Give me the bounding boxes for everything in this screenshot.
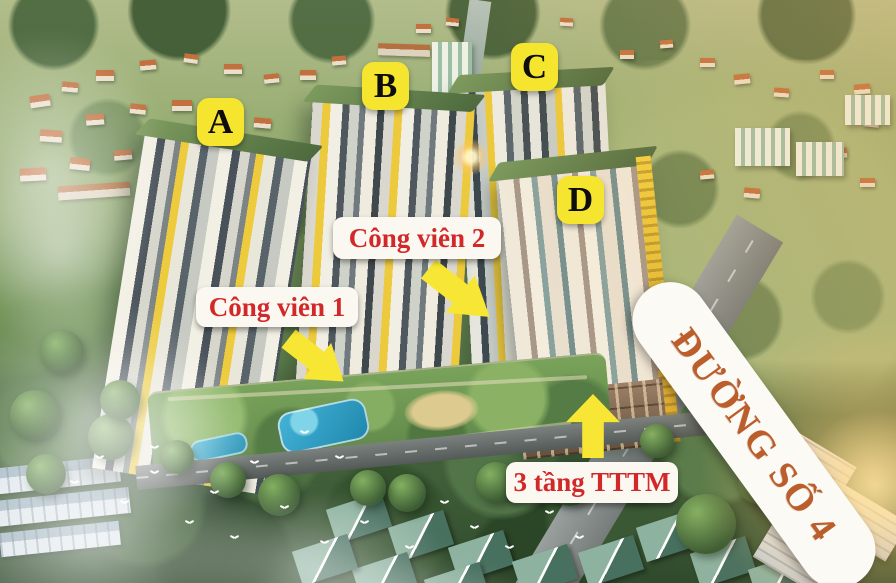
bird — [335, 455, 344, 459]
tree — [640, 424, 674, 458]
house — [264, 73, 280, 84]
bird — [210, 490, 219, 494]
rowhouse-block — [378, 43, 430, 57]
bird — [70, 480, 79, 484]
bird — [120, 500, 129, 504]
bird — [440, 500, 449, 504]
house — [734, 73, 751, 85]
bird — [575, 535, 584, 539]
bird — [150, 470, 159, 474]
mist-cloud — [240, 555, 540, 583]
midrise-building — [796, 142, 844, 176]
midrise-building — [845, 95, 890, 125]
callout-3-tang-tttm: 3 tầng TTTM — [506, 462, 678, 503]
house — [300, 70, 316, 80]
callout-cong-vien-1: Công viên 1 — [196, 287, 358, 327]
mist-cloud — [40, 350, 260, 520]
house — [820, 70, 834, 79]
house — [854, 83, 871, 94]
bird — [230, 535, 239, 539]
callout-cong-vien-2: Công viên 2 — [333, 217, 501, 259]
tower-label-a: A — [197, 98, 244, 146]
house — [183, 53, 198, 64]
playground — [403, 387, 480, 433]
bird — [280, 505, 289, 509]
midrise-building — [735, 128, 790, 166]
bird — [95, 455, 104, 459]
bird — [470, 525, 479, 529]
aerial-render: A B C D Công viên 1 Công viên 2 3 tầng T… — [0, 0, 896, 583]
house — [416, 24, 431, 33]
house — [860, 178, 875, 187]
house — [700, 58, 715, 67]
bird — [300, 430, 309, 434]
tower-label-d: D — [557, 176, 604, 224]
house — [560, 18, 573, 27]
bird — [250, 460, 259, 464]
bird — [405, 545, 414, 549]
bird — [150, 445, 159, 449]
bird — [545, 510, 554, 514]
bird — [320, 540, 329, 544]
bird — [505, 545, 514, 549]
house — [224, 64, 242, 74]
house — [172, 100, 192, 111]
house — [774, 87, 790, 97]
mist-cloud — [0, 150, 150, 350]
house — [332, 55, 347, 65]
house — [700, 169, 715, 179]
bird — [360, 520, 369, 524]
house — [254, 117, 272, 128]
house — [744, 187, 761, 198]
tower-label-c: C — [511, 43, 558, 91]
house — [620, 50, 634, 59]
lens-flare — [452, 138, 490, 176]
house — [660, 40, 674, 49]
tower-label-b: B — [362, 62, 409, 110]
house — [446, 17, 460, 26]
bird — [185, 520, 194, 524]
